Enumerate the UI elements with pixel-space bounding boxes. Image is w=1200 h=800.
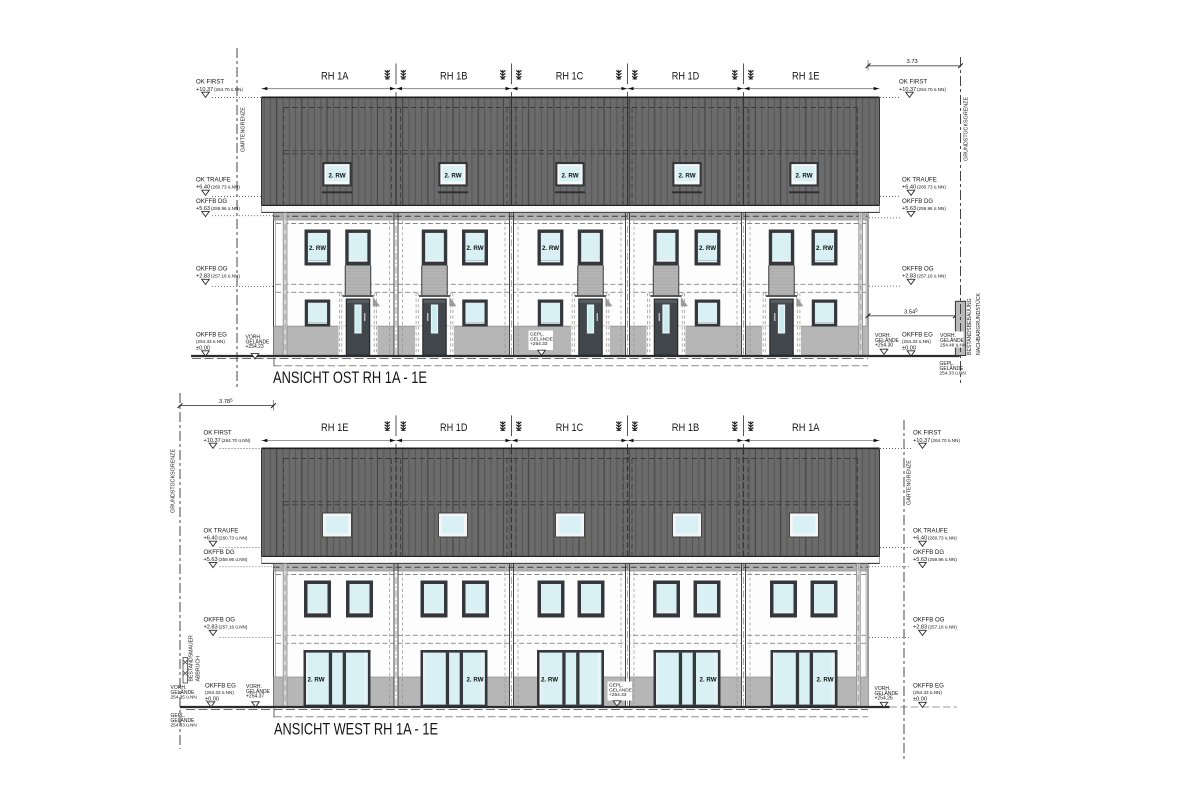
svg-text:(257.16 ü.NN): (257.16 ü.NN) [211,273,240,278]
svg-text:RH 1B: RH 1B [440,70,468,82]
svg-text:(254.33 ü.NN): (254.33 ü.NN) [196,339,225,344]
svg-text:+254.23: +254.23 [246,344,264,350]
svg-text:RH 1A: RH 1A [321,70,349,82]
svg-text:2. RW: 2. RW [466,676,483,683]
svg-text:OKFFB EG: OKFFB EG [205,683,236,690]
svg-text:ANSICHT OST RH 1A - 1E: ANSICHT OST RH 1A - 1E [273,369,427,387]
svg-text:ABBRUCH: ABBRUCH [195,656,201,682]
svg-text:(259.96 ü.NN): (259.96 ü.NN) [917,206,946,211]
svg-text:(259.96 ü.NN): (259.96 ü.NN) [211,206,240,211]
svg-text:(259.96 ü.NN): (259.96 ü.NN) [928,557,957,562]
svg-text:(254.33 ü.NN): (254.33 ü.NN) [902,339,931,344]
svg-text:BESTANDSMAUER: BESTANDSMAUER [189,635,195,682]
svg-text:2. RW: 2. RW [699,245,716,252]
svg-text:GARTENGRENZE: GARTENGRENZE [241,107,247,152]
svg-text:OKFFB OG: OKFFB OG [913,616,945,623]
svg-text:OKFFB OG: OKFFB OG [196,265,228,272]
svg-text:OKFFB DG: OKFFB DG [913,549,944,556]
svg-text:OK FIRST: OK FIRST [913,430,941,437]
svg-text:(260.73 ü.NN): (260.73 ü.NN) [917,185,946,190]
svg-text:+6.40: +6.40 [204,536,218,542]
svg-text:2. RW: 2. RW [307,676,324,683]
svg-text:+254.30: +254.30 [875,343,893,349]
svg-text:RH 1C: RH 1C [556,422,584,434]
svg-text:3.73: 3.73 [907,59,918,65]
svg-text:2. RW: 2. RW [816,676,833,683]
svg-text:OK TRAUFE: OK TRAUFE [204,527,239,534]
svg-text:2. RW: 2. RW [309,245,326,252]
svg-text:254.33 ü.NN: 254.33 ü.NN [940,371,966,376]
svg-text:OKFFB OG: OKFFB OG [902,265,934,272]
svg-text:2. RW: 2. RW [444,173,461,180]
svg-text:GRUNDSTÜCKSGRENZE: GRUNDSTÜCKSGRENZE [170,449,177,513]
svg-text:OKFFB EG: OKFFB EG [913,683,944,690]
svg-text:+5.63: +5.63 [204,557,218,563]
svg-text:(254.33 ü.NN): (254.33 ü.NN) [913,690,942,695]
svg-text:+5.63: +5.63 [196,206,210,212]
svg-text:(257.16 ü.NN): (257.16 ü.NN) [219,624,248,629]
svg-text:±0.00: ±0.00 [913,697,927,703]
svg-text:+5.63: +5.63 [902,206,916,212]
svg-text:RH 1B: RH 1B [672,422,700,434]
svg-text:(264.70 ü.NN): (264.70 ü.NN) [214,87,243,92]
svg-text:RH 1E: RH 1E [792,70,820,82]
svg-text:254.48 ü.NN: 254.48 ü.NN [940,343,966,348]
svg-text:+2.83: +2.83 [196,273,210,279]
svg-text:+5.63: +5.63 [913,557,927,563]
svg-text:+2.83: +2.83 [902,273,916,279]
svg-text:+254.33: +254.33 [609,692,627,698]
svg-text:+254.33: +254.33 [530,341,548,347]
svg-text:254.35 ü.NN: 254.35 ü.NN [171,695,197,700]
svg-text:254.33 ü.NN: 254.33 ü.NN [171,723,197,728]
svg-text:OKFFB EG: OKFFB EG [196,332,227,339]
svg-text:(264.70 ü.NN): (264.70 ü.NN) [222,438,251,443]
svg-text:GARTENGRENZE: GARTENGRENZE [907,460,913,505]
svg-text:OKFFB DG: OKFFB DG [902,198,933,205]
svg-text:2. RW: 2. RW [699,676,716,683]
svg-text:(260.73 ü.NN): (260.73 ü.NN) [211,185,240,190]
svg-text:BESTANDSBEBAUUNG: BESTANDSBEBAUUNG [967,298,973,355]
svg-text:(254.33 ü.NN): (254.33 ü.NN) [205,690,234,695]
svg-text:(259.96 ü.NN): (259.96 ü.NN) [219,557,248,562]
svg-text:NACHBARGRUNDSTÜCK: NACHBARGRUNDSTÜCK [975,292,982,355]
svg-text:OK FIRST: OK FIRST [204,430,232,437]
svg-text:2. RW: 2. RW [328,173,345,180]
svg-text:+254.37: +254.37 [246,694,264,700]
svg-text:+6.40: +6.40 [913,536,927,542]
svg-text:(264.70 ü.NN): (264.70 ü.NN) [917,87,946,92]
svg-text:+2.83: +2.83 [204,624,218,630]
svg-text:+254.26: +254.26 [875,696,893,702]
svg-text:OKFFB EG: OKFFB EG [902,332,933,339]
svg-text:RH 1E: RH 1E [321,422,349,434]
svg-text:(260.73 ü.NN): (260.73 ü.NN) [928,536,957,541]
svg-text:(257.16 ü.NN): (257.16 ü.NN) [928,624,957,629]
svg-text:OK TRAUFE: OK TRAUFE [913,527,948,534]
svg-text:+6.40: +6.40 [196,185,210,191]
svg-text:OKFFB DG: OKFFB DG [204,549,235,556]
svg-text:2. RW: 2. RW [466,245,483,252]
svg-text:(257.16 ü.NN): (257.16 ü.NN) [917,273,946,278]
svg-text:(264.70 ü.NN): (264.70 ü.NN) [931,438,960,443]
svg-text:OK FIRST: OK FIRST [196,79,224,86]
svg-text:GRUNDSTÜCKSGRENZE: GRUNDSTÜCKSGRENZE [963,97,970,161]
svg-text:OK FIRST: OK FIRST [899,79,927,86]
svg-text:OK TRAUFE: OK TRAUFE [902,176,937,183]
svg-text:RH 1D: RH 1D [440,422,468,434]
svg-text:OKFFB OG: OKFFB OG [204,616,236,623]
svg-text:RH 1A: RH 1A [792,422,820,434]
svg-text:2. RW: 2. RW [542,245,559,252]
svg-text:+2.83: +2.83 [913,624,927,630]
svg-text:OKFFB DG: OKFFB DG [196,198,227,205]
svg-text:RH 1D: RH 1D [672,70,700,82]
svg-text:OK TRAUFE: OK TRAUFE [196,176,231,183]
svg-text:RH 1C: RH 1C [556,70,584,82]
svg-text:(260.73 ü.NN): (260.73 ü.NN) [219,536,248,541]
svg-text:2. RW: 2. RW [561,173,578,180]
svg-text:2. RW: 2. RW [816,245,833,252]
svg-text:2. RW: 2. RW [795,173,812,180]
svg-text:+6.40: +6.40 [902,185,916,191]
svg-text:ANSICHT WEST RH 1A - 1E: ANSICHT WEST RH 1A - 1E [274,720,438,738]
svg-text:2. RW: 2. RW [541,676,558,683]
svg-text:2. RW: 2. RW [678,173,695,180]
